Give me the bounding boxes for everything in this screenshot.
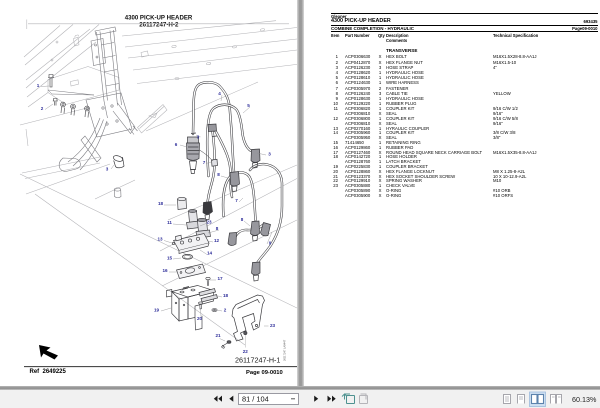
svg-text:23: 23	[270, 323, 276, 328]
svg-text:19: 19	[154, 308, 160, 313]
svg-text:4300 PICK-UP HEADER: 4300 PICK-UP HEADER	[125, 14, 193, 21]
svg-text:26117247 LA944T: 26117247 LA944T	[283, 339, 287, 361]
svg-text:Ref 2649225: Ref 2649225	[30, 369, 67, 375]
svg-text:6: 6	[175, 142, 178, 147]
svg-text:16: 16	[162, 268, 168, 273]
svg-text:18: 18	[223, 293, 229, 298]
svg-text:17: 17	[217, 276, 223, 281]
svg-text:9: 9	[269, 241, 272, 246]
svg-text:3: 3	[197, 135, 200, 140]
svg-text:7: 7	[235, 198, 238, 203]
svg-text:8: 8	[241, 217, 244, 222]
svg-text:4: 4	[218, 91, 221, 96]
svg-text:3: 3	[106, 167, 109, 172]
svg-text:14: 14	[207, 251, 213, 256]
svg-text:2: 2	[41, 106, 44, 111]
svg-text:8: 8	[216, 226, 219, 231]
svg-text:18: 18	[158, 201, 164, 206]
svg-text:2: 2	[224, 308, 227, 313]
svg-text:20: 20	[197, 316, 203, 321]
svg-text:11: 11	[167, 220, 172, 225]
svg-text:1: 1	[37, 83, 40, 88]
svg-text:Page 09-0010: Page 09-0010	[246, 370, 283, 376]
svg-text:21: 21	[215, 333, 221, 338]
svg-text:15: 15	[167, 256, 173, 261]
svg-text:5: 5	[247, 103, 250, 108]
svg-text:3: 3	[268, 152, 271, 157]
svg-text:26117247-H-2: 26117247-H-2	[139, 21, 179, 28]
svg-text:8: 8	[217, 172, 220, 177]
svg-text:7: 7	[203, 160, 206, 165]
svg-text:12: 12	[214, 238, 220, 243]
svg-text:22: 22	[243, 349, 249, 354]
svg-text:26117247-H-1: 26117247-H-1	[235, 356, 280, 365]
svg-text:60.13%: 60.13%	[572, 395, 597, 404]
svg-text:81 / 104: 81 / 104	[242, 395, 269, 404]
svg-text:23: 23	[206, 220, 212, 225]
svg-text:13: 13	[157, 237, 163, 242]
